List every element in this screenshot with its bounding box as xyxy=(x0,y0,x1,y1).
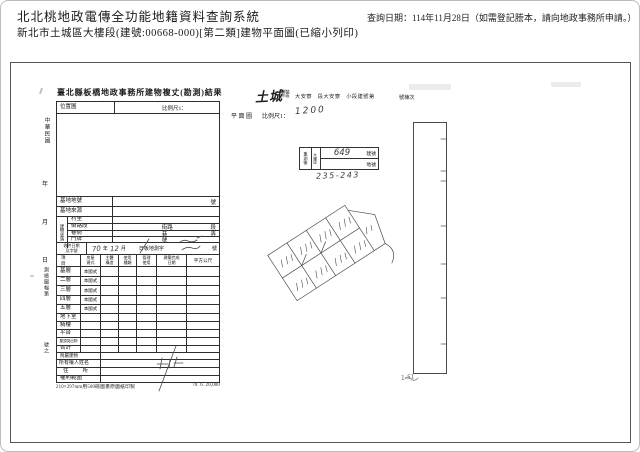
resurvey-stamp: 重測後 大樓段 649 建號 地號 xyxy=(299,147,379,170)
cell xyxy=(137,330,157,337)
floor-label: 基層 xyxy=(57,267,81,276)
table-row-floor2: 二層 本國式 xyxy=(57,276,219,285)
form-title: 臺北縣板橋地政事務所建物複丈(勘測)結果 xyxy=(57,87,227,98)
cell xyxy=(137,338,157,345)
cell xyxy=(157,330,187,337)
street-row: 街路段 街路 段 xyxy=(57,223,219,230)
cell xyxy=(137,296,157,304)
site-number-label: 基地地號 xyxy=(57,197,113,206)
stamp-section-label: 大樓段 xyxy=(312,148,321,169)
cell xyxy=(157,286,187,295)
site-source-label: 基地來源 xyxy=(57,207,113,216)
building-number-label: 建號 xyxy=(363,150,378,157)
location-map-label: 位置圖 xyxy=(57,102,115,113)
paper-spec-note: 210×297mm用500磅圖畫原圖紙印製 70. 6. 20,000 xyxy=(56,383,220,390)
plan-scale-label: 比例尺1： xyxy=(262,111,289,120)
margin-year-label: 年 xyxy=(42,179,48,188)
cell xyxy=(157,296,187,304)
section-label: 大安寮 段大安寮 小段建號第 xyxy=(295,93,375,100)
cell xyxy=(119,338,137,345)
floor-style-value: 本國式 xyxy=(81,296,101,304)
plan-scale-handwriting: 1200 xyxy=(295,105,327,117)
floor-style-value: 本國式 xyxy=(81,277,101,285)
strip-note-handwriting: 1-51 xyxy=(401,373,415,382)
margin-era-label: 中華民國 xyxy=(42,117,51,144)
scan-streak xyxy=(409,84,451,90)
cell xyxy=(119,314,137,321)
header-style: 房屋建式 xyxy=(81,255,101,266)
scan-smudge xyxy=(30,275,34,277)
floor-label: 平台 xyxy=(57,330,81,337)
location-map-row: 位置圖 比例尺1： xyxy=(57,102,219,114)
table-row-roof-structure: 屋頂突出物 xyxy=(57,337,219,345)
cell xyxy=(119,322,137,329)
cell xyxy=(137,314,157,321)
site-source-row: 基地來源 xyxy=(57,206,219,216)
cell xyxy=(81,322,101,329)
cell xyxy=(101,322,119,329)
parcel-numbers-handwriting: 235-243 xyxy=(316,170,360,181)
cell xyxy=(119,277,137,285)
scanned-document: 中華民國 年 月 日 測繪圖幅第 號之 臺北縣板橋地政事務所建物複丈(勘測)結果… xyxy=(10,62,631,443)
site-number-row: 基地地號 號 xyxy=(57,196,219,206)
receipt-month-handwriting: 12 xyxy=(110,244,119,253)
cell xyxy=(187,286,219,295)
floor-label: 三層 xyxy=(57,286,81,295)
stamp-building-number-row: 649 建號 xyxy=(321,148,378,159)
stamp-parcel-row: 地號 xyxy=(321,159,378,169)
receipt-row: 收件日期 及字號 70 年 12 月 日板地測字 號 xyxy=(57,242,219,254)
cell xyxy=(157,314,187,321)
receipt-year-handwriting: 70 xyxy=(92,244,102,253)
cell xyxy=(101,277,119,285)
cell xyxy=(101,296,119,304)
building-number-suffix: 號棟次 xyxy=(399,94,415,101)
header-item: 項目 xyxy=(57,255,81,266)
cell xyxy=(137,277,157,285)
township-label: 鄉鎮 市區 xyxy=(282,90,290,99)
cell xyxy=(187,330,219,337)
print-code-text: 70. 6. 20,000 xyxy=(192,383,220,390)
scan-streak xyxy=(551,82,581,87)
margin-sheet-label: 測繪圖幅第 xyxy=(42,267,49,297)
header-area: 平方公尺 xyxy=(187,255,219,266)
cell xyxy=(157,277,187,285)
address-row: 住所 xyxy=(57,367,219,375)
cell xyxy=(119,267,137,276)
address-value xyxy=(101,368,219,375)
scan-smudge xyxy=(39,88,43,94)
address-label: 住所 xyxy=(57,368,101,375)
receipt-mid-label: 日板地測字 xyxy=(139,245,164,252)
floor-label: 屋頂突出物 xyxy=(57,338,81,345)
cell xyxy=(137,305,157,313)
cell xyxy=(187,267,219,276)
header-use-type: 使用種類 xyxy=(119,255,137,266)
cell xyxy=(81,338,101,345)
floor-style-value: 本國式 xyxy=(81,305,101,313)
query-date: 查詢日期：114年11月28日（如需登記謄本，請向地政事務所申請。） xyxy=(367,11,636,24)
header-management: 管理使用 xyxy=(137,255,157,266)
margin-month-label: 月 xyxy=(42,217,48,226)
cell xyxy=(101,267,119,276)
parcel-number-label: 地號 xyxy=(363,161,378,168)
survey-form: 位置圖 比例尺1： 基地地號 號 基地來源 村里 街路段 街路 段 巷衖 巷 xyxy=(56,101,220,383)
cell xyxy=(187,296,219,304)
floor-style-value: 本國式 xyxy=(81,267,101,276)
cell xyxy=(101,338,119,345)
system-title: 北北桃地政電傳全功能地籍資料查詢系統 xyxy=(17,6,260,25)
cell xyxy=(187,314,219,321)
receipt-value: 70 年 12 月 日板地測字 號 xyxy=(87,243,219,254)
cell xyxy=(101,314,119,321)
rights-value xyxy=(101,376,219,382)
table-row-basement: 地下室 xyxy=(57,313,219,321)
stamp-main: 649 建號 地號 xyxy=(321,148,378,169)
building-location-label: 建物坐落 xyxy=(59,224,65,241)
stamp-resurvey-label: 重測後 xyxy=(300,148,312,169)
owner-row: 所有權人姓名 xyxy=(57,359,219,367)
table-header-row: 項目 房屋建式 主體構造 使用種類 管理使用 建築完成日期 平方公尺 xyxy=(57,254,219,266)
cell xyxy=(119,305,137,313)
cell xyxy=(119,296,137,304)
building-number-handwriting: 649 xyxy=(321,148,363,158)
cell xyxy=(119,330,137,337)
floor-plan-strip xyxy=(413,122,447,374)
cell xyxy=(81,330,101,337)
cell xyxy=(157,267,187,276)
cell xyxy=(137,286,157,295)
owner-value xyxy=(101,360,219,367)
district-handwriting: 土城 xyxy=(255,85,284,105)
cell xyxy=(81,314,101,321)
annex-row: 附屬建物 xyxy=(57,352,219,359)
site-number-suffix: 號 xyxy=(113,197,219,206)
cell xyxy=(157,322,187,329)
margin-day-label: 日 xyxy=(42,255,48,264)
floor-label: 地下室 xyxy=(57,314,81,321)
paper-note-text: 210×297mm用500磅圖畫原圖紙印製 xyxy=(56,383,135,390)
plan-label: 平面圖 xyxy=(231,111,254,120)
table-row-floor1: 基層 本國式 xyxy=(57,266,219,276)
cell xyxy=(137,322,157,329)
margin-sheet-no-label: 號之 xyxy=(42,342,49,354)
owner-label: 所有權人姓名 xyxy=(57,360,101,367)
receipt-suffix-label: 號 xyxy=(212,245,219,252)
table-row-floor3: 三層 本國式 xyxy=(57,285,219,295)
site-source-value xyxy=(113,207,219,216)
receipt-label: 收件日期 及字號 xyxy=(57,243,87,254)
table-row-total: 合計 xyxy=(57,345,219,352)
floor-label: 二層 xyxy=(57,277,81,285)
cell xyxy=(119,286,137,295)
cell xyxy=(157,338,187,345)
floor-label: 騎樓 xyxy=(57,322,81,329)
table-row-floor4: 四層 本國式 xyxy=(57,295,219,304)
cell xyxy=(187,322,219,329)
cell xyxy=(137,267,157,276)
cell xyxy=(101,330,119,337)
parcel-sketch xyxy=(268,194,402,317)
table-row-arcade: 騎樓 xyxy=(57,321,219,329)
cell xyxy=(187,305,219,313)
cell xyxy=(101,305,119,313)
sketch-number-scribbles xyxy=(279,209,379,291)
rights-label: 權利範圍 xyxy=(57,376,101,382)
cell xyxy=(187,277,219,285)
table-row-platform: 平台 xyxy=(57,329,219,337)
rights-row: 權利範圍 xyxy=(57,375,219,382)
cell xyxy=(157,305,187,313)
document-subtitle: 新北市土城區大樓段(建號:00668-000)[第二類]建物平面圖(已縮小列印) xyxy=(17,25,358,40)
location-scale-label: 比例尺1： xyxy=(115,102,219,113)
cell xyxy=(101,286,119,295)
table-row-floor5: 五層 本國式 xyxy=(57,304,219,313)
header-completion-date: 建築完成日期 xyxy=(157,255,187,266)
village-row: 村里 xyxy=(57,216,219,223)
floor-style-value: 本國式 xyxy=(81,286,101,295)
cell xyxy=(187,338,219,345)
floor-label: 五層 xyxy=(57,305,81,313)
header-structure: 主體構造 xyxy=(101,255,119,266)
floor-label: 四層 xyxy=(57,296,81,304)
